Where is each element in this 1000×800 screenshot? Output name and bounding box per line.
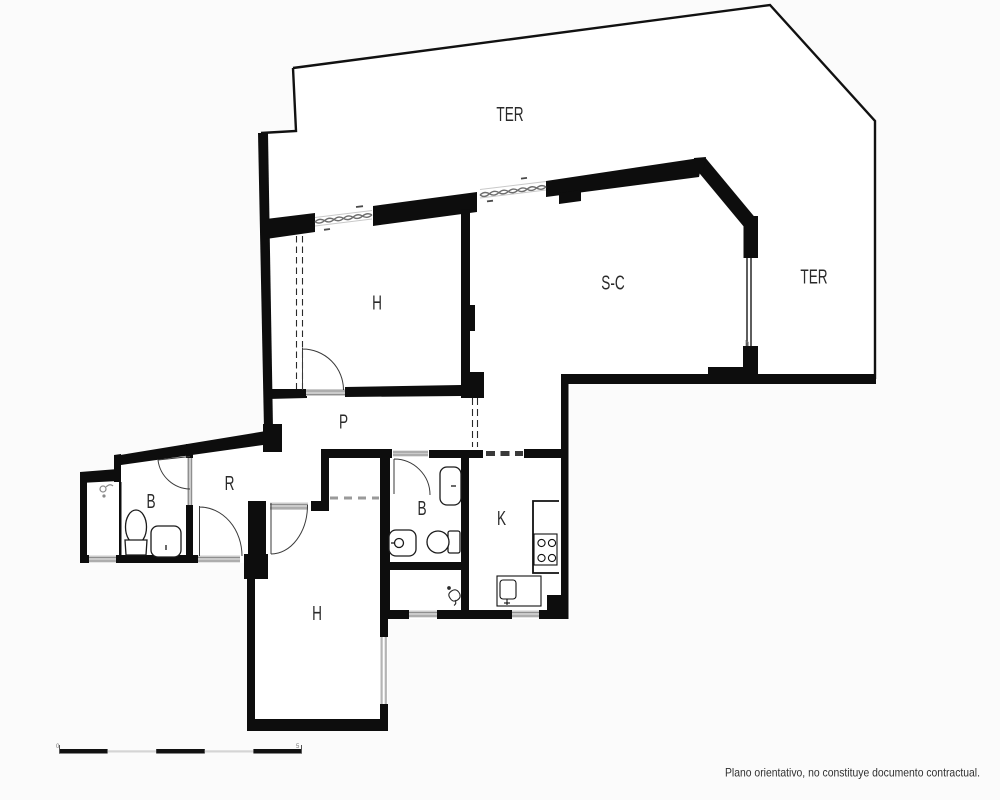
svg-text:B: B xyxy=(417,497,426,519)
svg-text:P: P xyxy=(339,411,348,433)
svg-text:H: H xyxy=(312,602,322,624)
svg-text:TER: TER xyxy=(800,266,827,288)
svg-text:Plano orientativo, no constitu: Plano orientativo, no constituye documen… xyxy=(725,766,980,780)
svg-text:R: R xyxy=(225,472,235,494)
svg-text:S-C: S-C xyxy=(601,272,624,294)
svg-text:H: H xyxy=(372,292,382,314)
svg-text:K: K xyxy=(497,507,507,529)
svg-text:TER: TER xyxy=(496,103,523,125)
svg-text:h: h xyxy=(745,339,749,348)
svg-text:B: B xyxy=(146,490,155,512)
